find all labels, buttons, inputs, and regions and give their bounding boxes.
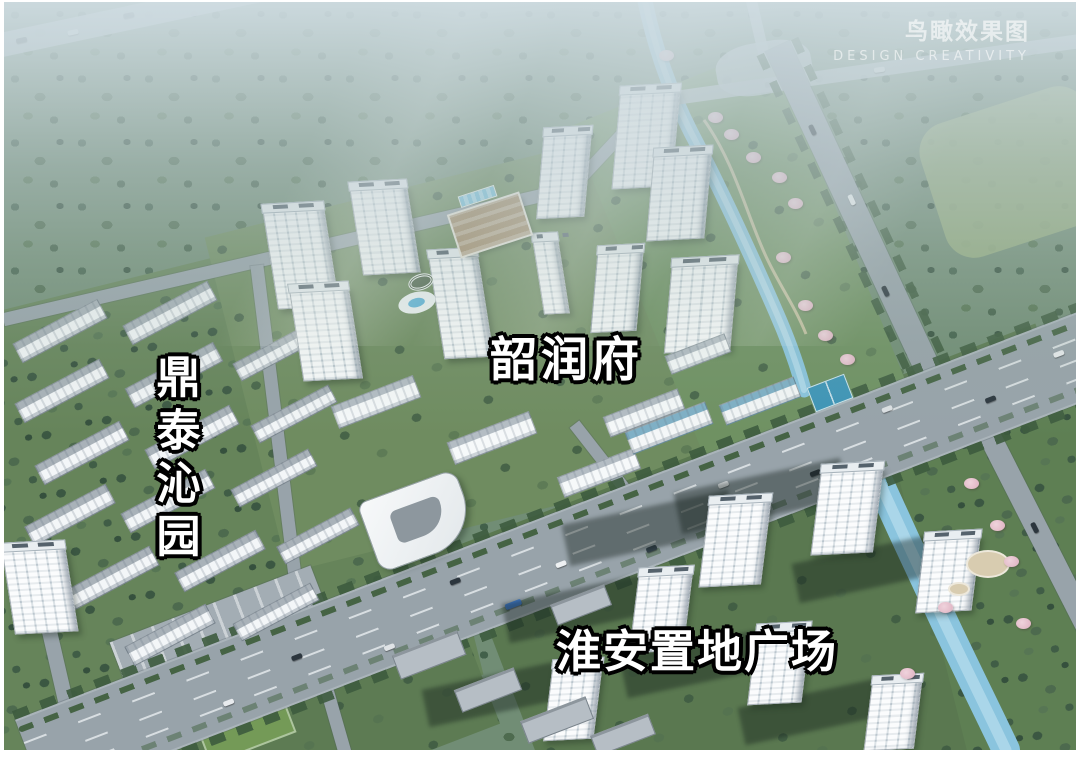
aerial-rendering-page: 鼎泰沁园 韶润府 淮安置地广场 鸟瞰效果图 DESIGN CREATIVITY xyxy=(0,0,1080,758)
tower xyxy=(810,466,883,555)
tower xyxy=(646,151,712,242)
blossom-tree xyxy=(788,198,803,209)
tower xyxy=(590,249,643,333)
park-plaza xyxy=(966,550,1010,578)
blossom-tree xyxy=(708,112,723,123)
blossom-tree xyxy=(772,172,787,183)
blossom-tree xyxy=(990,520,1005,531)
tower xyxy=(698,498,771,587)
blossom-tree xyxy=(900,668,915,679)
blossom-tree xyxy=(1004,556,1019,567)
aerial-photo: 鼎泰沁园 韶润府 淮安置地广场 鸟瞰效果图 DESIGN CREATIVITY xyxy=(4,2,1076,750)
blossom-tree xyxy=(659,50,674,61)
blossom-tree xyxy=(724,129,739,140)
watermark-title: 鸟瞰效果图 xyxy=(774,12,1030,46)
label-center-estate: 韶润府 xyxy=(490,336,643,387)
park-plaza xyxy=(948,582,970,596)
blossom-tree xyxy=(964,478,979,489)
blossom-tree xyxy=(798,300,813,311)
blossom-tree xyxy=(1016,618,1031,629)
blossom-tree xyxy=(818,330,833,341)
watermark-subtitle: DESIGN CREATIVITY xyxy=(774,49,1030,64)
blossom-tree xyxy=(746,152,761,163)
tower xyxy=(863,679,922,750)
blossom-tree xyxy=(840,354,855,365)
watermark: 鸟瞰效果图 DESIGN CREATIVITY xyxy=(774,12,1030,64)
tower xyxy=(536,131,592,219)
label-left-estate: 鼎泰沁园 xyxy=(150,354,198,566)
blossom-tree xyxy=(938,602,953,613)
blossom-tree xyxy=(776,252,791,263)
label-bottom-plaza: 淮安置地广场 xyxy=(556,628,838,677)
